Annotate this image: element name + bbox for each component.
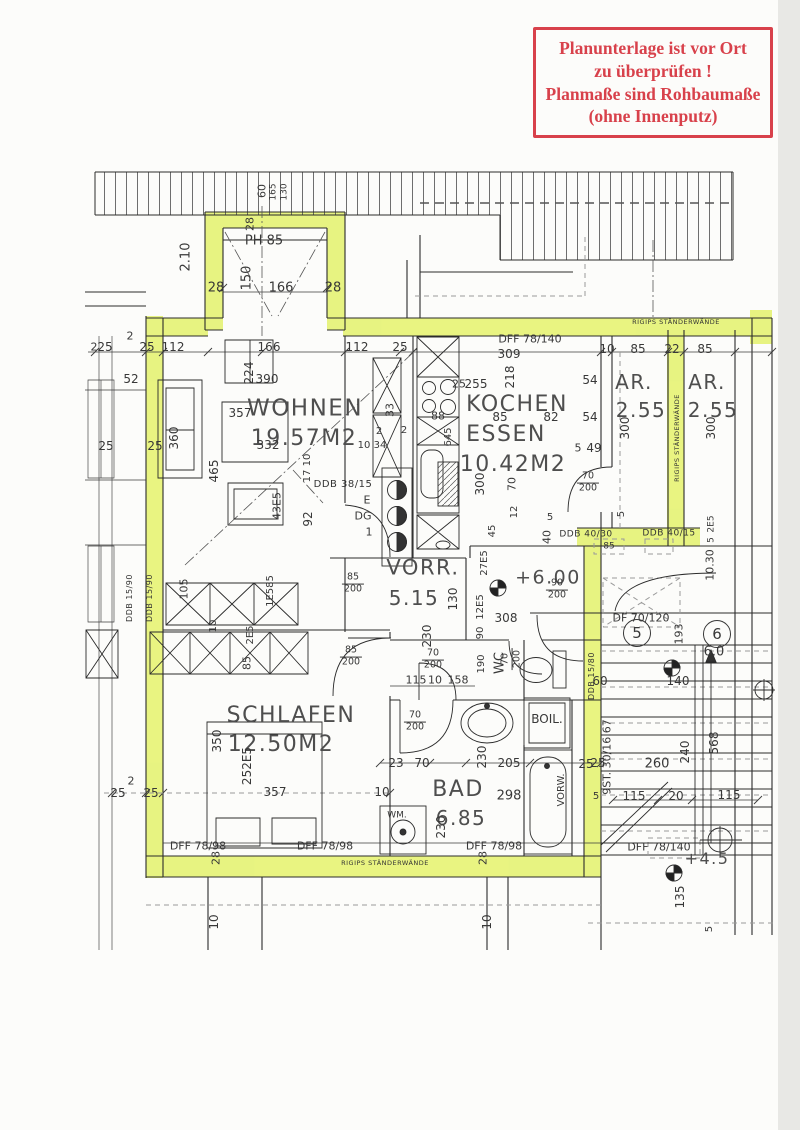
electric-meters — [388, 481, 407, 552]
boiler — [524, 698, 570, 748]
bed — [207, 722, 322, 848]
survey-symbols — [490, 580, 775, 881]
sink-detail — [436, 541, 450, 549]
stamp-line: (ohne Innenputz) — [540, 105, 766, 128]
staircase — [601, 645, 772, 855]
bathtub — [524, 750, 572, 854]
cooktop-burner — [441, 380, 456, 395]
door-arc — [615, 573, 716, 611]
stamp-line: Planmaße sind Rohbaumaße — [540, 83, 766, 106]
bench — [228, 483, 283, 525]
sink-drainer — [438, 462, 458, 506]
door-arc — [333, 638, 391, 696]
survey-point — [664, 660, 680, 676]
cooktop-burner — [441, 400, 456, 415]
benchmark-symbol — [700, 826, 742, 854]
door-arc — [400, 700, 453, 753]
kitchen-units — [373, 337, 459, 549]
door-arc — [419, 663, 456, 700]
floor-plan-page: 28601651302.10150PH 85281662822522511216… — [0, 0, 800, 1130]
stamp-line: zu überprüfen ! — [540, 60, 766, 83]
roof-hatching — [95, 172, 733, 260]
cooktop-burner — [423, 400, 436, 413]
door-arc — [568, 467, 612, 512]
survey-point — [490, 580, 506, 596]
survey-point — [666, 865, 682, 881]
cabinet — [225, 340, 273, 383]
table — [222, 402, 288, 462]
approval-stamp: Planunterlage ist vor Ort zu überprüfen … — [533, 27, 773, 138]
sofa — [158, 380, 202, 478]
scan-edge — [778, 0, 800, 1130]
door-arc — [345, 505, 390, 557]
stamp-line: Planunterlage ist vor Ort — [540, 37, 766, 60]
floorplan-drawing — [0, 0, 800, 1130]
door-arc — [537, 615, 583, 661]
cooktop-burner — [423, 382, 436, 395]
washing-machine — [380, 806, 426, 854]
stair-arrow — [706, 650, 716, 662]
washbasin — [461, 703, 513, 743]
